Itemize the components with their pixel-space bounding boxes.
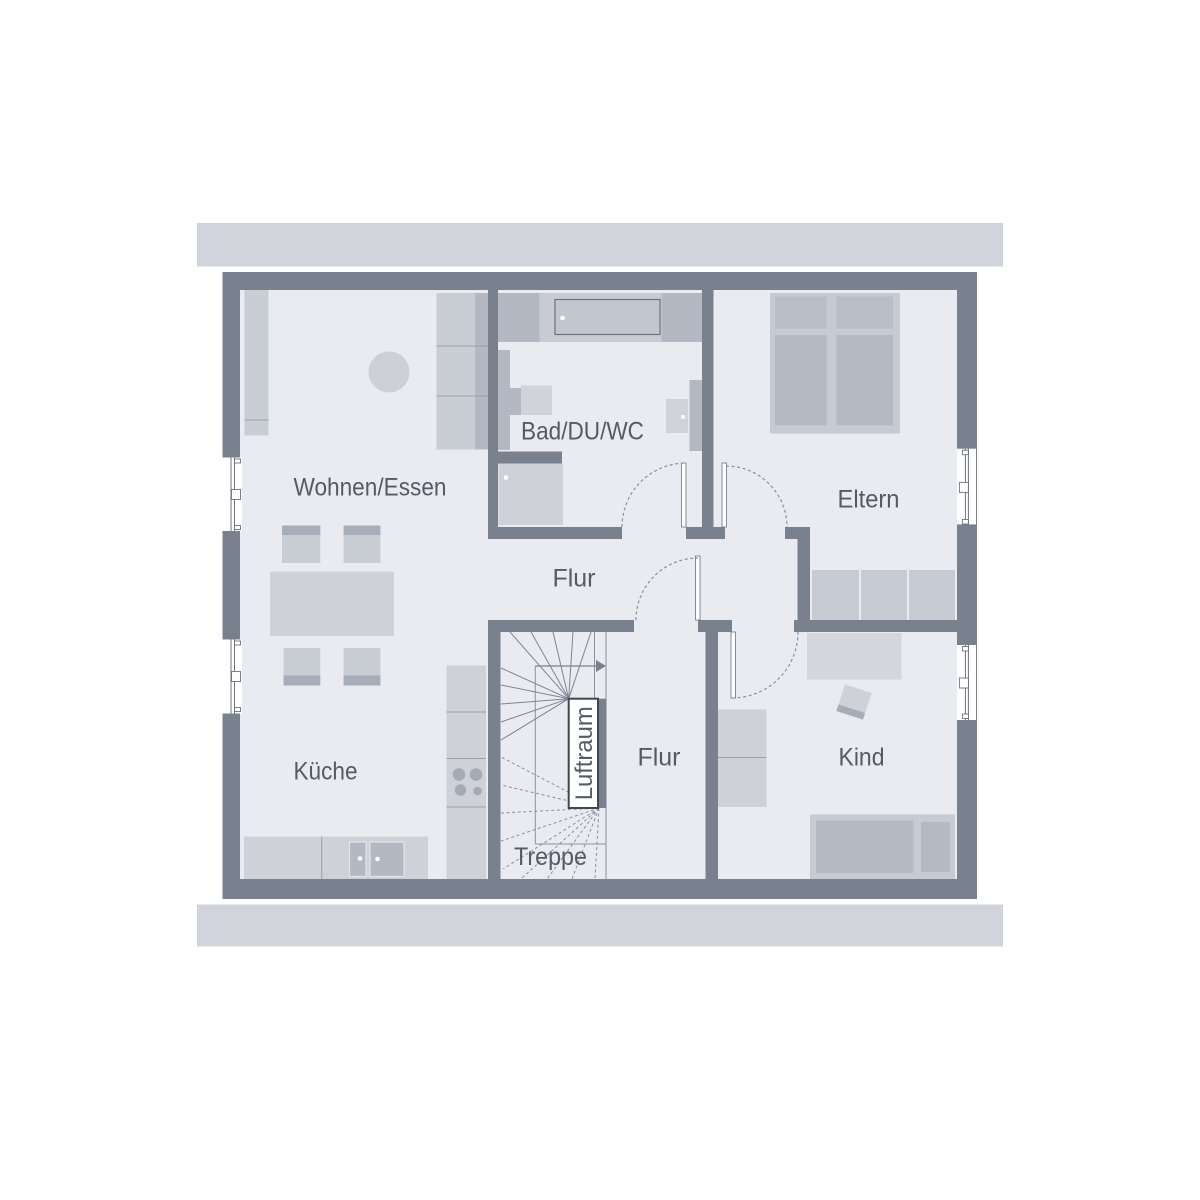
svg-text:Luftraum: Luftraum — [571, 706, 598, 800]
svg-text:Kind: Kind — [839, 744, 885, 772]
svg-text:Küche: Küche — [294, 758, 358, 786]
svg-text:Treppe: Treppe — [514, 843, 587, 871]
svg-text:Bad/DU/WC: Bad/DU/WC — [521, 418, 644, 446]
svg-text:Flur: Flur — [638, 744, 681, 772]
svg-text:Eltern: Eltern — [838, 486, 900, 514]
svg-text:Wohnen/Essen: Wohnen/Essen — [294, 474, 447, 502]
svg-text:Flur: Flur — [553, 565, 596, 593]
